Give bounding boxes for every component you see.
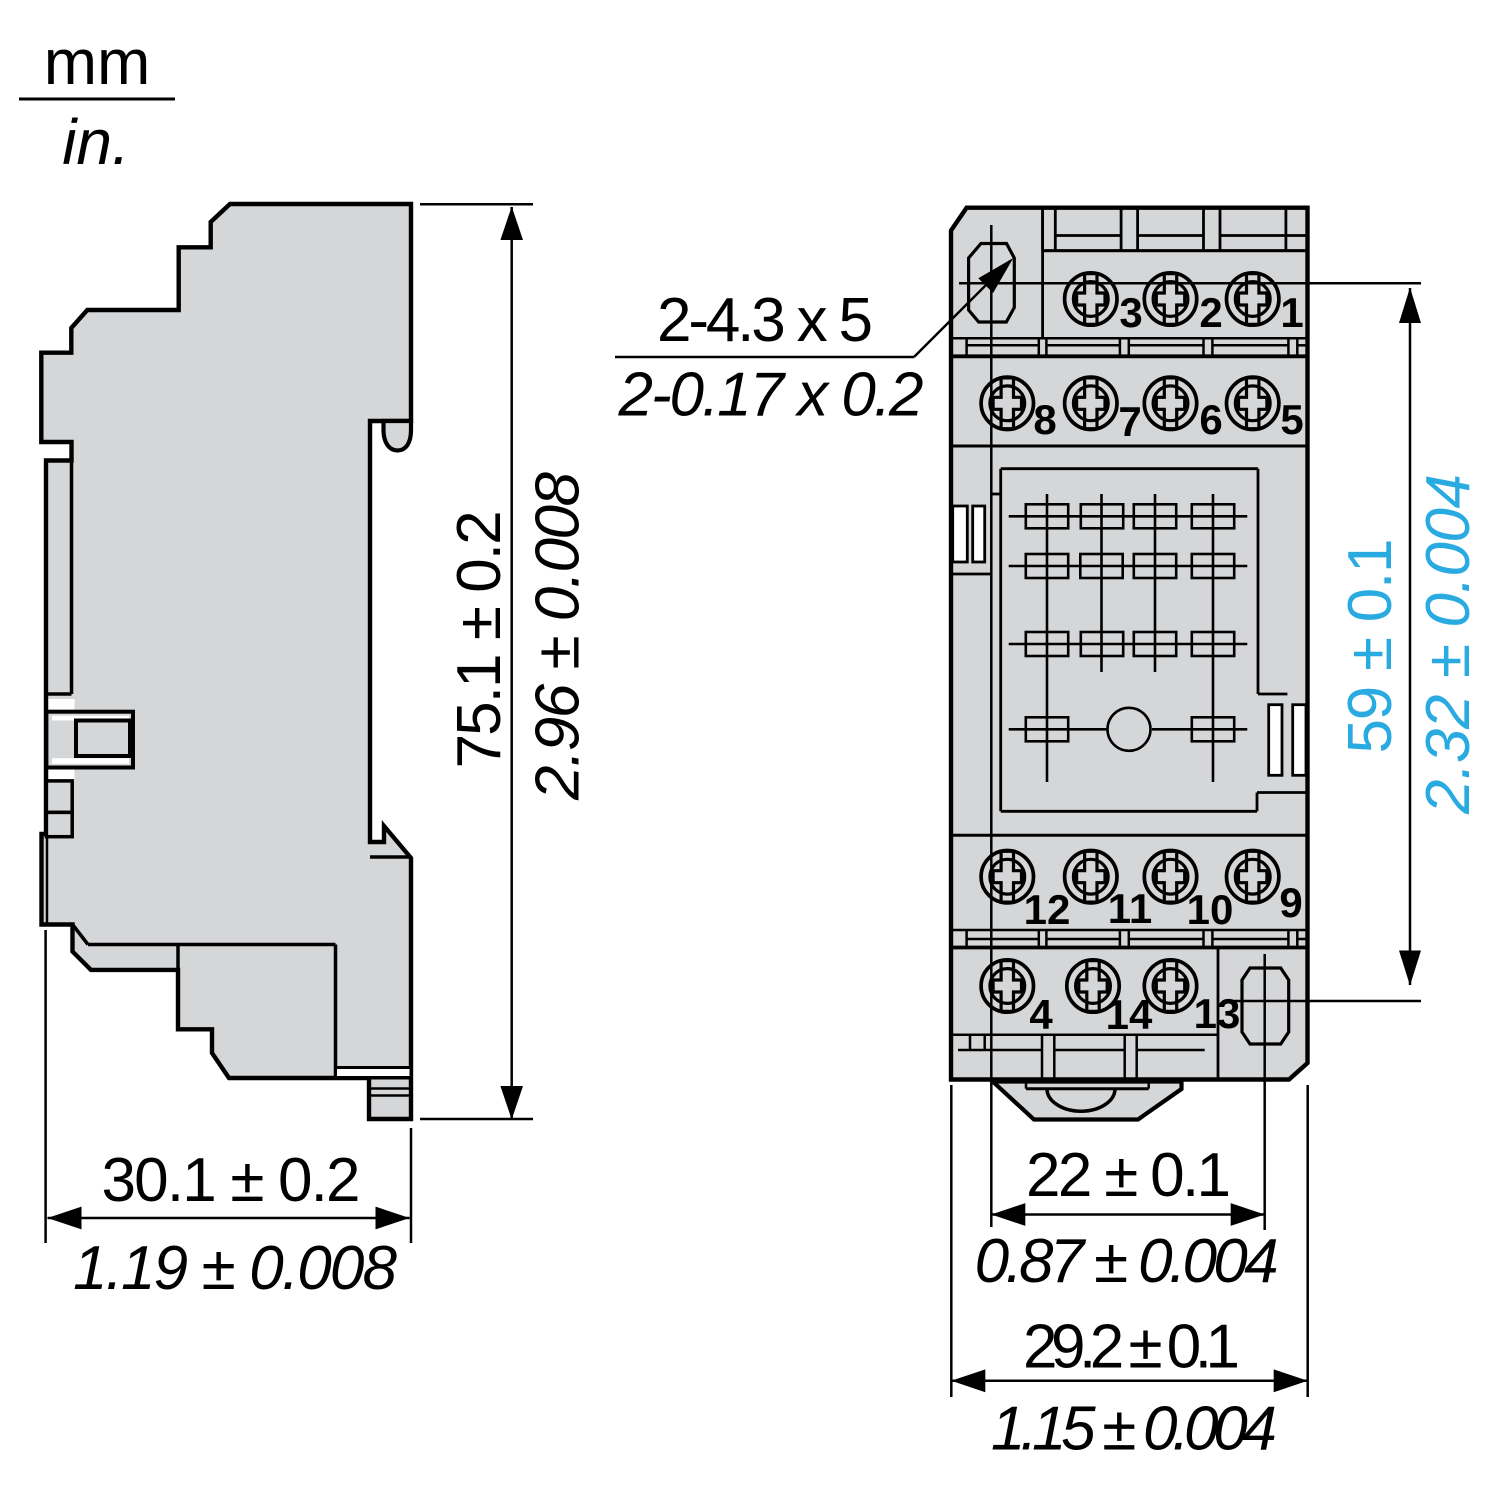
svg-text:75.1 ± 0.2: 75.1 ± 0.2 (445, 510, 514, 768)
svg-text:1.19 ± 0.008: 1.19 ± 0.008 (73, 1234, 398, 1303)
svg-text:9: 9 (1279, 879, 1302, 926)
svg-text:13: 13 (1194, 990, 1241, 1037)
svg-text:59 ± 0.1: 59 ± 0.1 (1336, 539, 1405, 754)
svg-text:7: 7 (1118, 398, 1141, 445)
svg-text:10: 10 (1187, 886, 1234, 933)
svg-text:2.32 ± 0.004: 2.32 ± 0.004 (1414, 474, 1483, 815)
svg-text:29.2 ± 0.1: 29.2 ± 0.1 (1023, 1313, 1240, 1382)
svg-text:1: 1 (1280, 289, 1303, 336)
svg-text:1.15 ± 0.004: 1.15 ± 0.004 (991, 1395, 1277, 1464)
svg-text:in.: in. (62, 106, 130, 178)
svg-text:6: 6 (1199, 396, 1222, 443)
svg-text:4: 4 (1029, 991, 1053, 1038)
svg-text:2-4.3 x 5: 2-4.3 x 5 (657, 286, 873, 355)
svg-text:2.96 ± 0.008: 2.96 ± 0.008 (524, 471, 593, 801)
svg-text:22 ± 0.1: 22 ± 0.1 (1026, 1141, 1231, 1210)
svg-text:2-0.17 x 0.2: 2-0.17 x 0.2 (618, 361, 924, 430)
svg-text:8: 8 (1033, 396, 1056, 443)
svg-text:14: 14 (1106, 991, 1153, 1038)
svg-text:11: 11 (1108, 885, 1152, 932)
svg-text:5: 5 (1280, 396, 1303, 443)
svg-text:12: 12 (1024, 886, 1071, 933)
svg-text:mm: mm (44, 26, 151, 98)
svg-text:0.87 ± 0.004: 0.87 ± 0.004 (975, 1227, 1279, 1296)
svg-text:30.1 ± 0.2: 30.1 ± 0.2 (102, 1146, 361, 1215)
svg-text:3: 3 (1119, 289, 1142, 336)
svg-text:2: 2 (1199, 289, 1222, 336)
